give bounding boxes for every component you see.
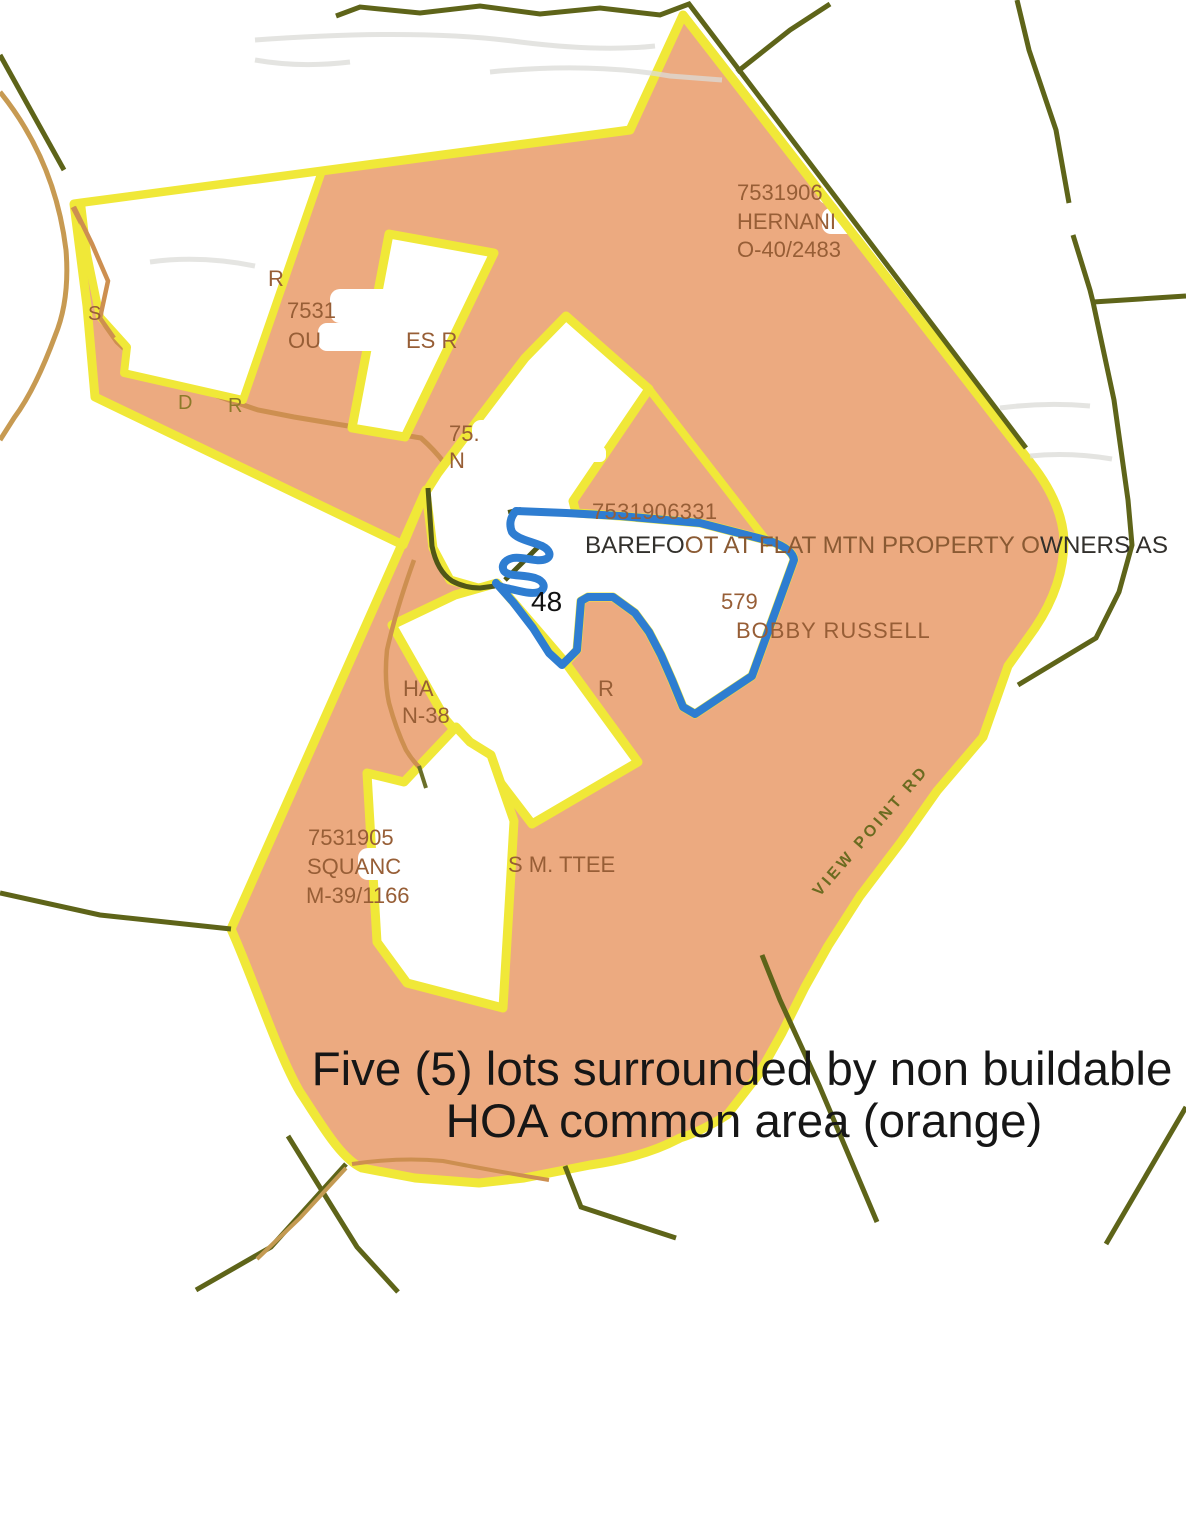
svg-text:S M. TTEE: S M. TTEE: [508, 852, 615, 877]
svg-text:Five (5) lots surrounded by no: Five (5) lots surrounded by non buildabl…: [312, 1043, 1173, 1096]
svg-text:SQUANC: SQUANC: [307, 854, 401, 879]
svg-text:579: 579: [721, 589, 758, 614]
svg-text:7531906: 7531906: [737, 180, 823, 205]
svg-text:HERNANI: HERNANI: [737, 209, 836, 234]
svg-text:75.: 75.: [449, 421, 480, 446]
svg-text:ES R: ES R: [406, 328, 457, 353]
svg-text:BAREFOOT AT FLAT MTN PROPERTY: BAREFOOT AT FLAT MTN PROPERTY OWNERS AS: [585, 532, 1168, 559]
svg-text:7531: 7531: [287, 298, 336, 323]
svg-text:HA: HA: [403, 676, 434, 701]
svg-text:48: 48: [531, 586, 562, 617]
svg-text:N-38: N-38: [402, 703, 450, 728]
svg-text:R: R: [598, 676, 614, 701]
svg-text:N: N: [449, 448, 465, 473]
svg-text:R: R: [268, 266, 284, 291]
svg-text:BOBBY RUSSELL: BOBBY RUSSELL: [736, 618, 931, 643]
svg-text:M-39/1166: M-39/1166: [306, 883, 410, 908]
svg-text:D: D: [178, 392, 192, 414]
svg-text:S: S: [88, 303, 101, 325]
svg-text:R: R: [228, 395, 242, 417]
svg-text:O-40/2483: O-40/2483: [737, 237, 841, 262]
svg-text:7531906331: 7531906331: [592, 499, 717, 524]
svg-text:HOA common area (orange): HOA common area (orange): [446, 1095, 1043, 1148]
svg-text:OU: OU: [288, 328, 321, 353]
svg-text:7531905: 7531905: [308, 825, 394, 850]
